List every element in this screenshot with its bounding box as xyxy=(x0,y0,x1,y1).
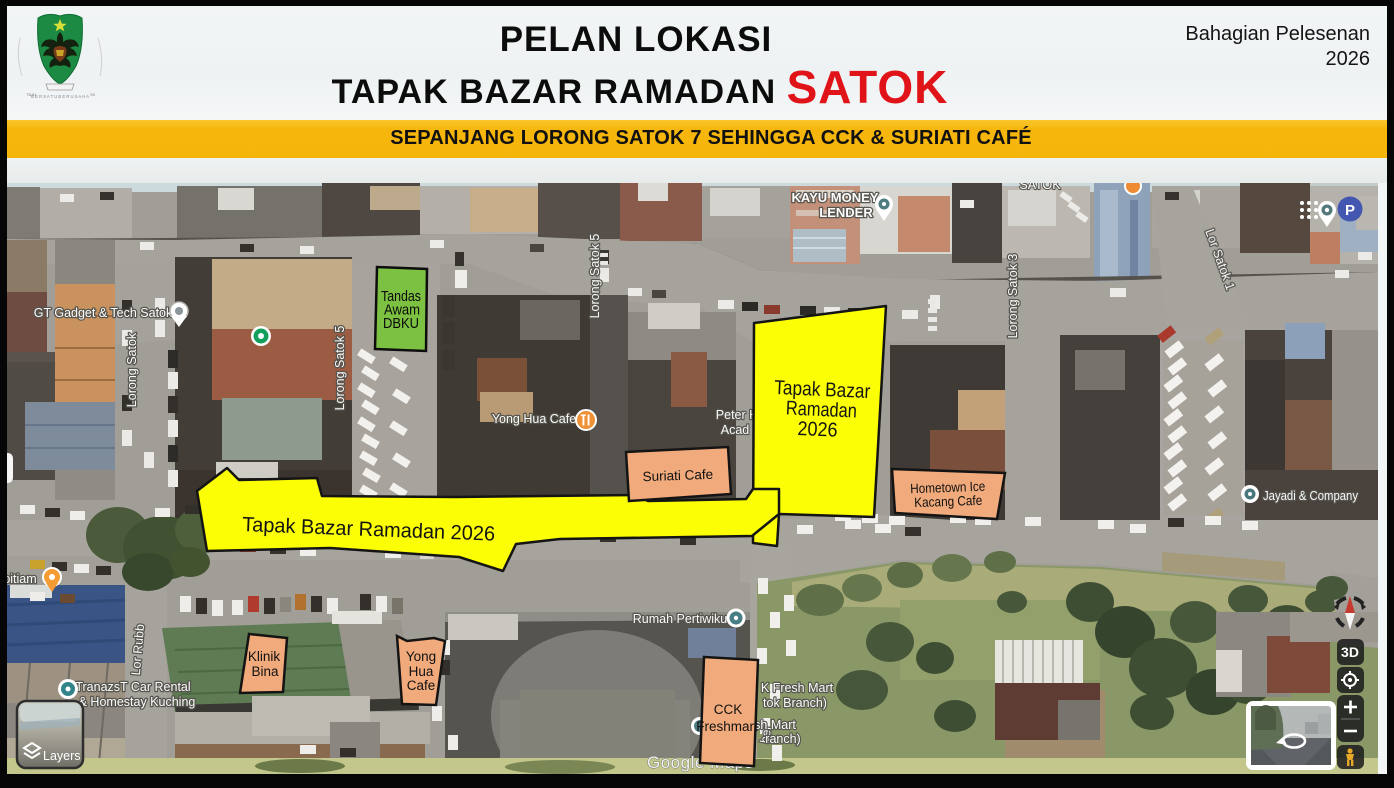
svg-text:& Homestay Kuching: & Homestay Kuching xyxy=(79,695,196,709)
svg-text:3D: 3D xyxy=(1341,644,1359,660)
svg-text:tok Branch): tok Branch) xyxy=(763,696,827,710)
svg-text:sh Mart: sh Mart xyxy=(754,718,796,732)
svg-text:B E R S A T U B E R U S A H A: B E R S A T U B E R U S A H A xyxy=(31,94,89,99)
svg-text:TBJH: TBJH xyxy=(26,92,36,97)
svg-text:Klinik: Klinik xyxy=(248,649,281,664)
svg-text:Kacang Cafe: Kacang Cafe xyxy=(914,493,982,510)
svg-text:CCK: CCK xyxy=(714,702,743,717)
svg-text:Yong Hua Cafe: Yong Hua Cafe xyxy=(492,412,576,426)
svg-text:2026: 2026 xyxy=(797,418,838,442)
svg-text:ranch): ranch) xyxy=(765,732,800,746)
svg-text:Lorong Satok: Lorong Satok xyxy=(125,332,139,407)
svg-text:Lorong Satok 3: Lorong Satok 3 xyxy=(1006,254,1020,339)
svg-text:Lorong Satok 5: Lorong Satok 5 xyxy=(588,234,602,319)
svg-text:GT Gadget & Tech Satok: GT Gadget & Tech Satok xyxy=(34,306,173,320)
svg-text:KAYU MONEY: KAYU MONEY xyxy=(792,190,879,205)
svg-text:Lorong Satok 5: Lorong Satok 5 xyxy=(333,326,347,411)
svg-text:Cafe: Cafe xyxy=(407,678,436,693)
svg-text:Acad: Acad xyxy=(721,423,750,437)
svg-text:Yong: Yong xyxy=(406,649,436,664)
svg-text:K Fresh Mart: K Fresh Mart xyxy=(761,681,834,695)
svg-text:Jayadi & Company: Jayadi & Company xyxy=(1263,489,1359,503)
svg-text:LENDER: LENDER xyxy=(819,205,873,220)
svg-text:Rumah Pertiwiku: Rumah Pertiwiku xyxy=(633,612,728,626)
svg-text:DBKU: DBKU xyxy=(383,316,419,332)
svg-text:Freshmart: Freshmart xyxy=(696,719,758,734)
svg-text:Peter H: Peter H xyxy=(716,408,758,422)
svg-text:SK: SK xyxy=(90,92,96,97)
svg-text:P: P xyxy=(1345,202,1355,219)
svg-text:Bina: Bina xyxy=(251,664,279,679)
svg-text:Suriati Cafe: Suriati Cafe xyxy=(642,467,713,484)
svg-text:SATOK: SATOK xyxy=(1019,183,1061,192)
svg-text:Hua: Hua xyxy=(409,664,434,679)
svg-text:TranazsT Car Rental: TranazsT Car Rental xyxy=(75,680,190,694)
svg-text:pitiam: pitiam xyxy=(7,572,37,586)
svg-text:Layers: Layers xyxy=(43,749,81,763)
